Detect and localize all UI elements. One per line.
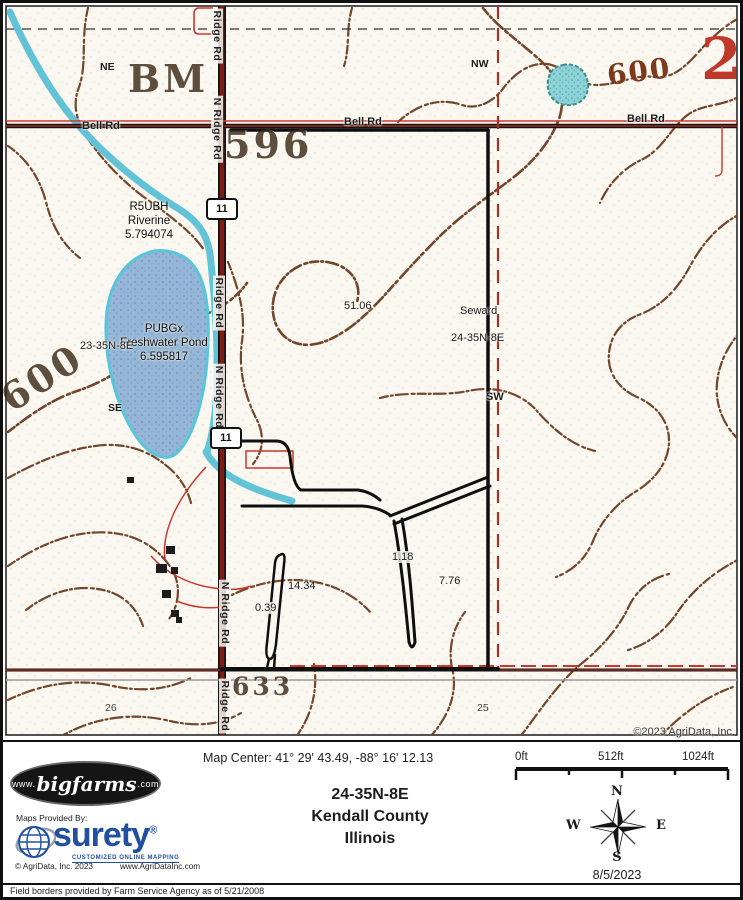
bell-rd-label-left: Bell Rd [82, 120, 120, 132]
pond-code: PUBGx [120, 323, 208, 337]
pond-type: Freshwater Pond [120, 337, 208, 351]
pond-acres: 6.595817 [120, 351, 208, 365]
bell-rd-label-right: Bell Rd [627, 113, 665, 125]
bell-rd-label-mid: Bell Rd [344, 116, 382, 128]
township-seward-label: Seward [460, 305, 497, 317]
map-linework [0, 0, 743, 741]
quadrant-ne-label: NE [100, 61, 115, 73]
acreage-7-76: 7.76 [439, 575, 460, 587]
map-title-county: Kendall County [230, 808, 510, 826]
surety-logo: surety® [53, 818, 156, 852]
ridge-rd-label-top: Ridge Rd [211, 9, 223, 64]
map-title-trs: 24-35N-8E [230, 786, 510, 804]
compass-west-label: W [566, 818, 581, 833]
footer-divider [0, 740, 743, 742]
bigfarms-com: .com [138, 779, 160, 789]
route-11-number: 11 [220, 432, 232, 444]
riverine-acres: 5.794074 [125, 229, 173, 243]
bigfarms-logo: www.bigfarms.com [10, 761, 161, 806]
plat-map-export: BM 596 600 600 633 2 NE NW SE SW Bell Rd… [0, 0, 743, 900]
disclaimer-divider [0, 883, 743, 885]
compass-north-label: N [604, 784, 630, 799]
acreage-14-34: 14.34 [288, 580, 316, 592]
section-23-label: 23-35N-8E [80, 340, 133, 352]
compass-east-label: E [656, 818, 666, 833]
small-pond [548, 64, 588, 105]
riverine-type: Riverine [125, 215, 173, 229]
route-11-shield-lower: 11 [210, 427, 242, 449]
n-ridge-rd-label-upper: N Ridge Rd [211, 96, 223, 163]
n-ridge-rd-label-mid: N Ridge Rd [213, 364, 225, 431]
globe-icon [14, 822, 56, 862]
map-title-state: Illinois [230, 830, 510, 848]
scale-label-1024ft: 1024ft [682, 751, 714, 763]
quadrant-se-label: SE [108, 402, 122, 414]
route-11-shield-upper: 11 [206, 198, 238, 220]
section-number-26: 26 [105, 702, 117, 714]
elevation-596-label: 596 [224, 126, 312, 164]
agridata-url: www.AgriDataInc.com [120, 862, 200, 871]
agridata-copyright: © AgriData, Inc. 2023 [15, 862, 93, 871]
surety-name: surety [53, 816, 149, 854]
quadrant-nw-label: NW [471, 58, 489, 70]
scale-label-512ft: 512ft [598, 751, 624, 763]
elevation-600-right-label: 600 [606, 54, 673, 90]
bigfarms-www: www. [12, 779, 36, 789]
acreage-51-06: 51.06 [344, 300, 372, 312]
map-date: 8/5/2023 [577, 868, 657, 882]
route-11-number: 11 [216, 203, 228, 215]
scale-label-0ft: 0ft [515, 751, 528, 763]
section-corner-number: 2 [701, 30, 741, 88]
pond-wetland-label: PUBGx Freshwater Pond 6.595817 [120, 323, 208, 364]
benchmark-label: BM [128, 60, 208, 98]
bigfarms-name: bigfarms [36, 772, 136, 796]
acreage-0-39: 0.39 [254, 602, 277, 614]
elevation-633-label: 633 [232, 674, 293, 699]
ridge-rd-label-bottom: Ridge Rd [219, 679, 231, 734]
acreage-1-18: 1.18 [391, 551, 414, 563]
registered-mark: ® [149, 825, 156, 837]
map-copyright: ©2023 AgriData, Inc. [633, 726, 735, 738]
ridge-rd-label-mid: Ridge Rd [213, 276, 225, 331]
riverine-code: R5UBH [125, 201, 173, 215]
quadrant-sw-label: SW [486, 391, 504, 403]
map-center-coordinates: Map Center: 41° 29' 43.49, -88° 16' 12.1… [203, 751, 533, 765]
map-panel: BM 596 600 600 633 2 NE NW SE SW Bell Rd… [0, 0, 743, 741]
section-24-label: 24-35N-8E [451, 332, 504, 344]
n-ridge-rd-label-lower: N Ridge Rd [219, 580, 231, 647]
compass-rose-icon [590, 799, 646, 855]
section-number-25: 25 [477, 702, 489, 714]
riverine-wetland-label: R5UBH Riverine 5.794074 [125, 201, 173, 242]
field-borders-disclaimer: Field borders provided by Farm Service A… [10, 886, 264, 896]
scale-bar [514, 766, 730, 782]
